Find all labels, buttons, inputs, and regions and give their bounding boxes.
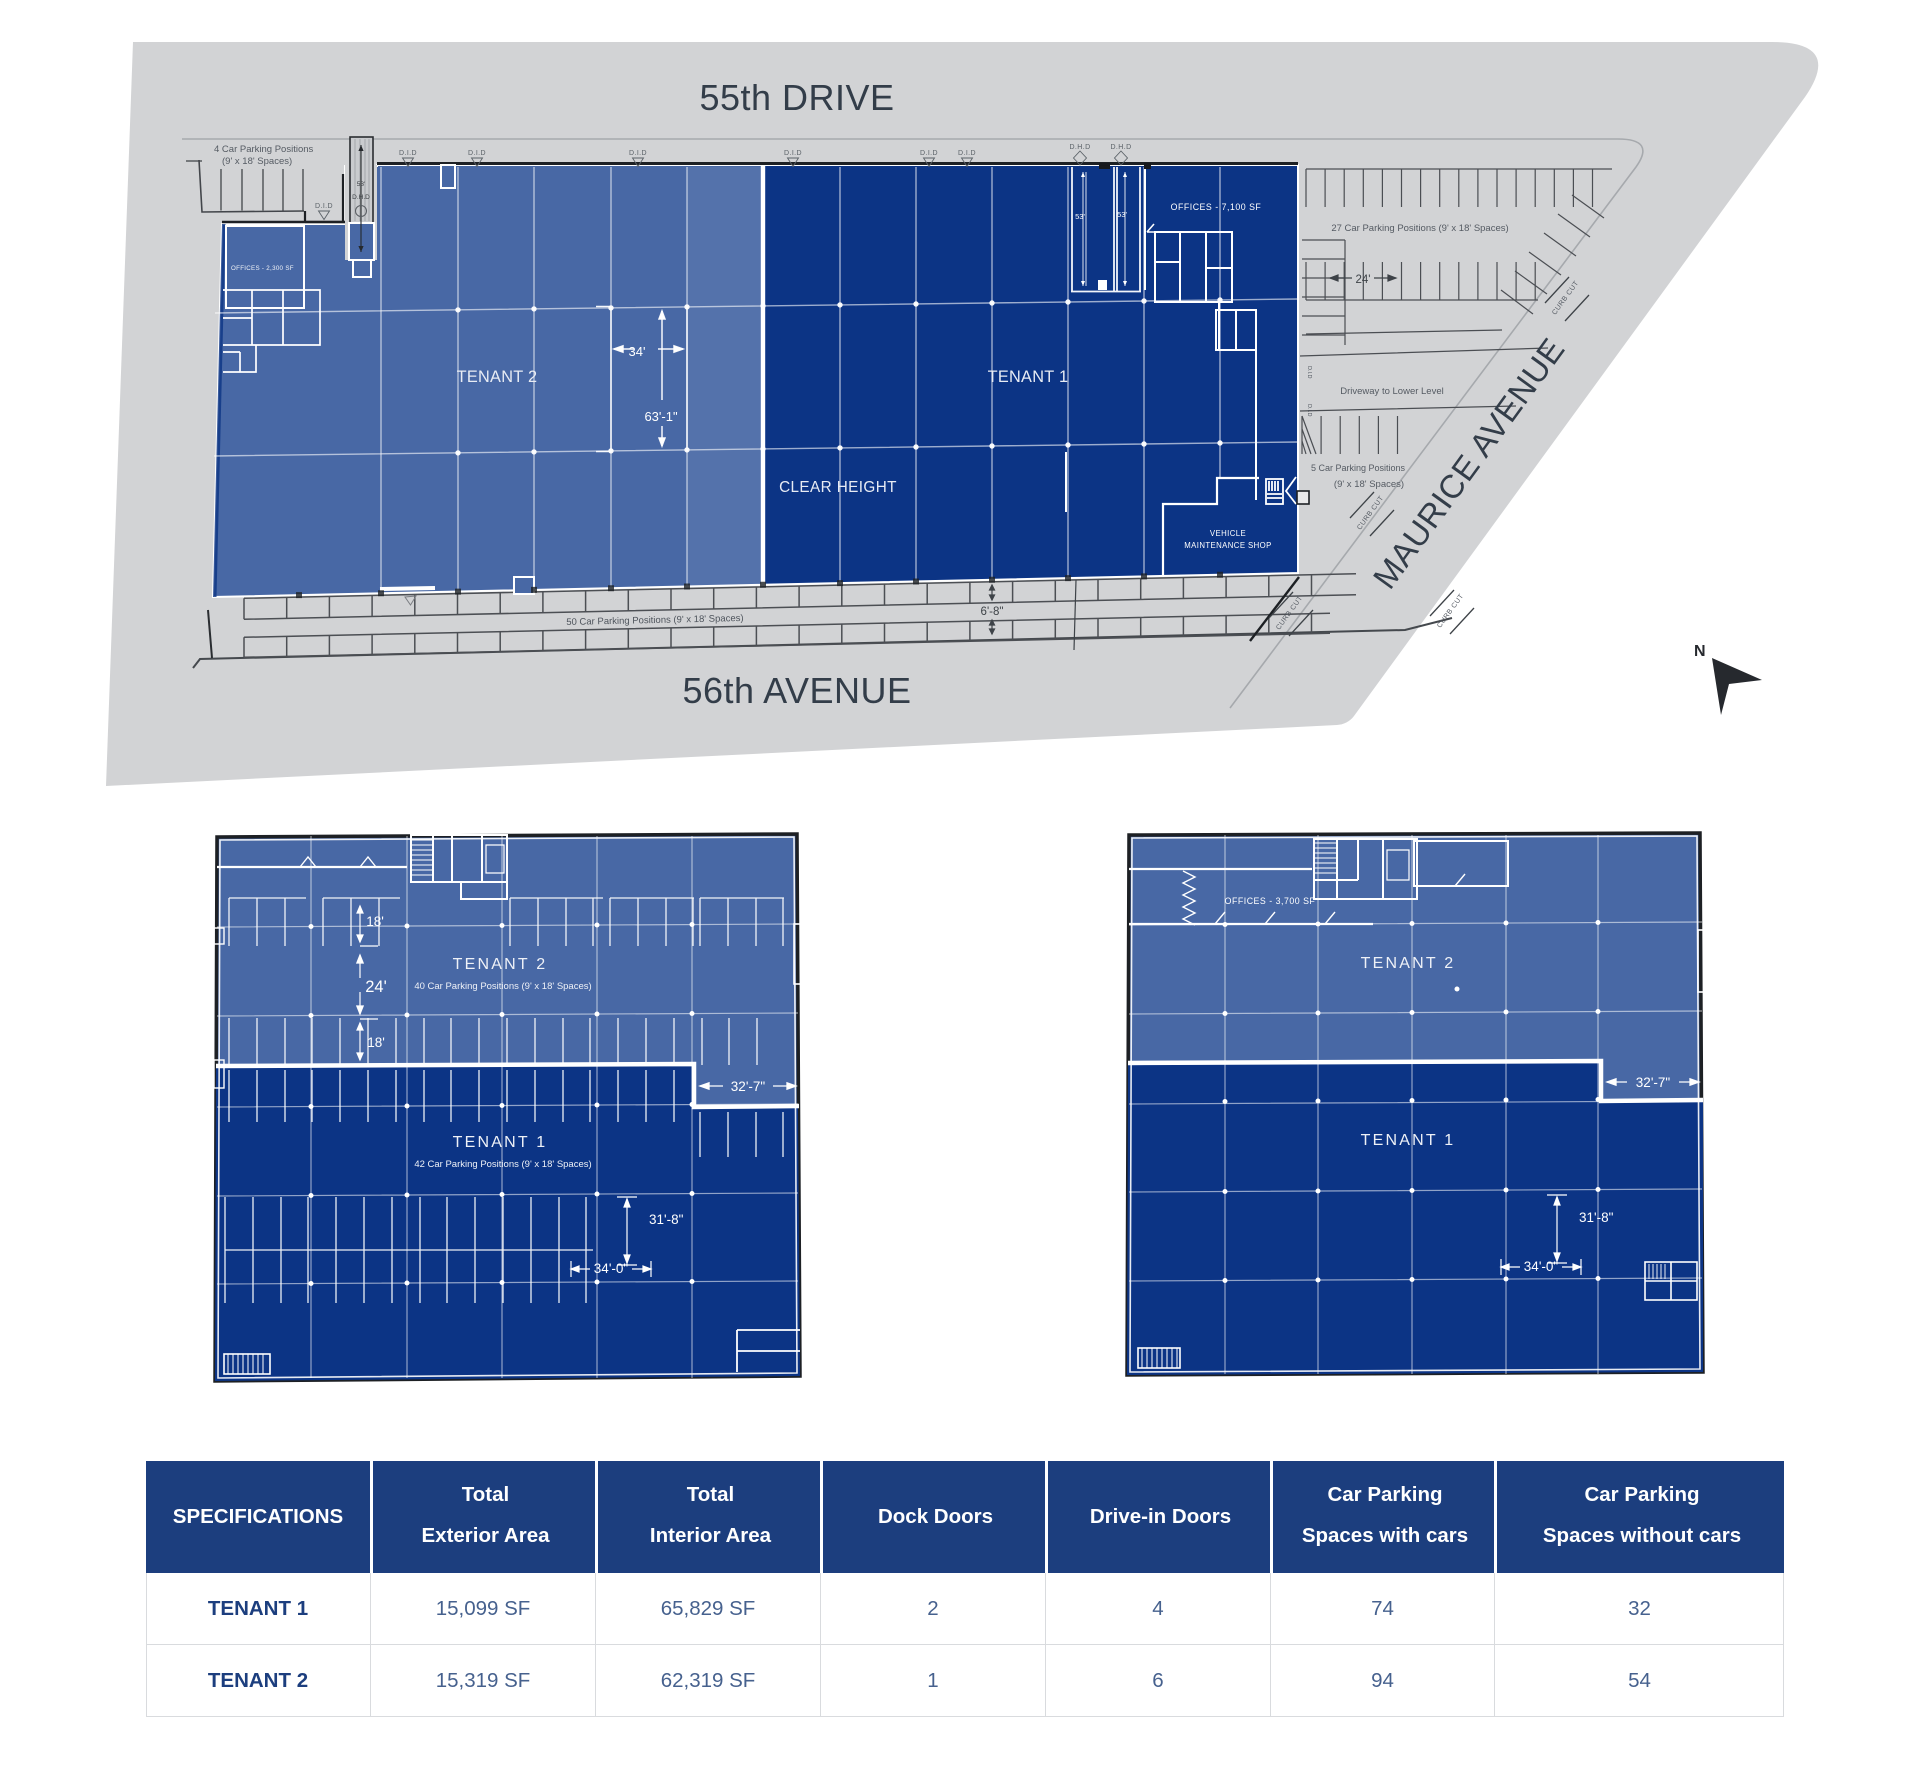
svg-text:VEHICLE: VEHICLE xyxy=(1210,529,1246,538)
svg-text:D.H.D: D.H.D xyxy=(352,194,370,201)
svg-text:63'-1": 63'-1" xyxy=(644,409,678,424)
svg-text:32'-7": 32'-7" xyxy=(731,1079,766,1094)
svg-text:18': 18' xyxy=(366,914,384,929)
svg-text:D.I.D: D.I.D xyxy=(1306,404,1312,417)
svg-text:TENANT 2: TENANT 2 xyxy=(457,368,538,386)
svg-text:TENANT 1: TENANT 1 xyxy=(453,1134,548,1151)
svg-text:24': 24' xyxy=(1356,274,1371,286)
svg-text:D.H.D: D.H.D xyxy=(1069,144,1090,151)
svg-text:TENANT 2: TENANT 2 xyxy=(453,956,548,973)
svg-text:53': 53' xyxy=(1075,212,1085,221)
svg-text:32'-7": 32'-7" xyxy=(1636,1075,1671,1090)
svg-text:53': 53' xyxy=(1117,210,1127,219)
svg-text:D.I.D: D.I.D xyxy=(784,150,802,157)
svg-text:34'-0": 34'-0" xyxy=(594,1261,629,1276)
svg-text:18': 18' xyxy=(367,1035,385,1050)
svg-text:34'-0": 34'-0" xyxy=(1524,1259,1559,1274)
svg-text:TENANT 1: TENANT 1 xyxy=(1361,1132,1456,1149)
svg-text:56th AVENUE: 56th AVENUE xyxy=(683,670,912,711)
svg-text:(9' x 18' Spaces): (9' x 18' Spaces) xyxy=(1334,479,1404,490)
svg-text:40 Car Parking Positions (9' x: 40 Car Parking Positions (9' x 18' Space… xyxy=(414,981,591,992)
svg-text:CURB CUT: CURB CUT xyxy=(1436,593,1465,630)
svg-text:(9' x 18' Spaces): (9' x 18' Spaces) xyxy=(222,156,292,167)
svg-text:4 Car Parking Positions: 4 Car Parking Positions xyxy=(214,144,314,155)
svg-text:42 Car Parking Positions (9' x: 42 Car Parking Positions (9' x 18' Space… xyxy=(414,1159,591,1170)
svg-text:27 Car Parking Positions (9' x: 27 Car Parking Positions (9' x 18' Space… xyxy=(1331,223,1508,234)
svg-text:TENANT 2: TENANT 2 xyxy=(1361,955,1456,972)
svg-text:OFFICES - 7,100 SF: OFFICES - 7,100 SF xyxy=(1171,202,1262,212)
svg-text:31'-8": 31'-8" xyxy=(1579,1210,1614,1225)
svg-text:TENANT 1: TENANT 1 xyxy=(988,368,1069,386)
svg-text:OFFICES - 2,300 SF: OFFICES - 2,300 SF xyxy=(231,265,294,272)
svg-text:6'-8": 6'-8" xyxy=(981,606,1004,618)
svg-text:D.I.D: D.I.D xyxy=(958,150,976,157)
svg-text:D.I.D: D.I.D xyxy=(629,150,647,157)
svg-text:D.I.D: D.I.D xyxy=(468,150,486,157)
svg-text:OFFICES - 3,700 SF: OFFICES - 3,700 SF xyxy=(1225,896,1316,906)
svg-text:D.I.D: D.I.D xyxy=(315,203,333,210)
svg-text:D.H.D: D.H.D xyxy=(1110,144,1131,151)
svg-text:55th DRIVE: 55th DRIVE xyxy=(699,77,894,118)
svg-text:D.I.D: D.I.D xyxy=(920,150,938,157)
svg-text:N: N xyxy=(1694,643,1706,660)
svg-text:D.I.D: D.I.D xyxy=(1306,366,1312,379)
svg-text:34': 34' xyxy=(629,344,646,359)
svg-text:D.I.D: D.I.D xyxy=(399,150,417,157)
svg-text:53': 53' xyxy=(357,181,365,188)
svg-text:CLEAR HEIGHT: CLEAR HEIGHT xyxy=(779,479,897,496)
svg-text:31'-8": 31'-8" xyxy=(649,1212,684,1227)
svg-text:24': 24' xyxy=(365,978,387,996)
svg-text:Driveway to Lower Level: Driveway to Lower Level xyxy=(1340,386,1444,397)
svg-text:5 Car Parking Positions: 5 Car Parking Positions xyxy=(1311,463,1406,473)
svg-text:MAINTENANCE SHOP: MAINTENANCE SHOP xyxy=(1184,541,1271,550)
